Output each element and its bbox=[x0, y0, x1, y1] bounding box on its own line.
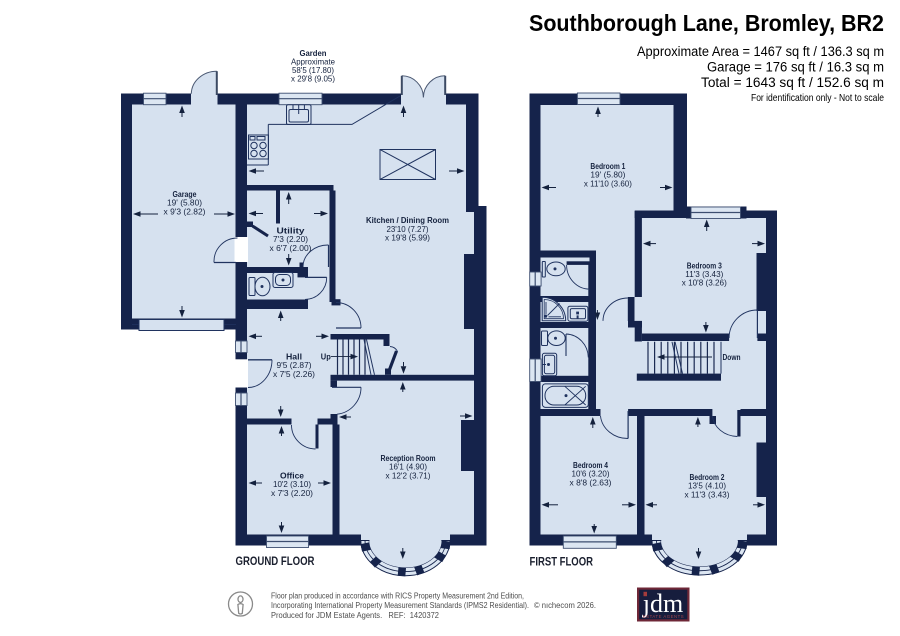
svg-text:x 7'3 (2.20): x 7'3 (2.20) bbox=[271, 488, 313, 498]
svg-text:Southborough Lane, Bromley, BR: Southborough Lane, Bromley, BR2 bbox=[529, 10, 884, 36]
svg-text:Floor plan produced in accorda: Floor plan produced in accordance with R… bbox=[271, 591, 524, 600]
svg-text:x 6'7 (2.00): x 6'7 (2.00) bbox=[270, 243, 312, 253]
svg-text:Approximate Area = 1467 sq ft: Approximate Area = 1467 sq ft / 136.3 sq… bbox=[637, 44, 884, 59]
svg-text:Incorporating International Pr: Incorporating International Property Mea… bbox=[271, 601, 529, 610]
svg-text:x 8'8 (2.63): x 8'8 (2.63) bbox=[570, 477, 612, 487]
svg-text:x 12'2 (3.71): x 12'2 (3.71) bbox=[386, 470, 431, 480]
svg-text:Down: Down bbox=[723, 353, 741, 362]
svg-text:x 29'8 (9.05): x 29'8 (9.05) bbox=[291, 73, 335, 83]
svg-text:For identification only - Not: For identification only - Not to scale bbox=[751, 93, 884, 104]
svg-text:GROUND FLOOR: GROUND FLOOR bbox=[236, 555, 316, 568]
svg-text:Produced for JDM Estate Agents: Produced for JDM Estate Agents. REF: 142… bbox=[271, 611, 439, 620]
svg-text:Total = 1643 sq ft / 152.6 sq: Total = 1643 sq ft / 152.6 sq m bbox=[701, 75, 884, 90]
svg-text:FIRST FLOOR: FIRST FLOOR bbox=[530, 556, 594, 569]
svg-text:x 19'8 (5.99): x 19'8 (5.99) bbox=[385, 233, 430, 243]
svg-text:x 10'8 (3.26): x 10'8 (3.26) bbox=[682, 278, 727, 288]
svg-text:Garage = 176 sq ft / 16.3 sq m: Garage = 176 sq ft / 16.3 sq m bbox=[707, 60, 884, 75]
svg-text:Up: Up bbox=[321, 353, 331, 362]
svg-text:x 9'3 (2.82): x 9'3 (2.82) bbox=[164, 206, 206, 216]
svg-text:x 11'3 (3.43): x 11'3 (3.43) bbox=[685, 489, 730, 499]
svg-text:x 7'5 (2.26): x 7'5 (2.26) bbox=[273, 369, 315, 379]
svg-text:© nıchecom 2026.: © nıchecom 2026. bbox=[534, 601, 596, 610]
svg-text:x 11'10 (3.60): x 11'10 (3.60) bbox=[584, 178, 632, 188]
svg-text:ESTATE AGENTS: ESTATE AGENTS bbox=[643, 614, 684, 619]
